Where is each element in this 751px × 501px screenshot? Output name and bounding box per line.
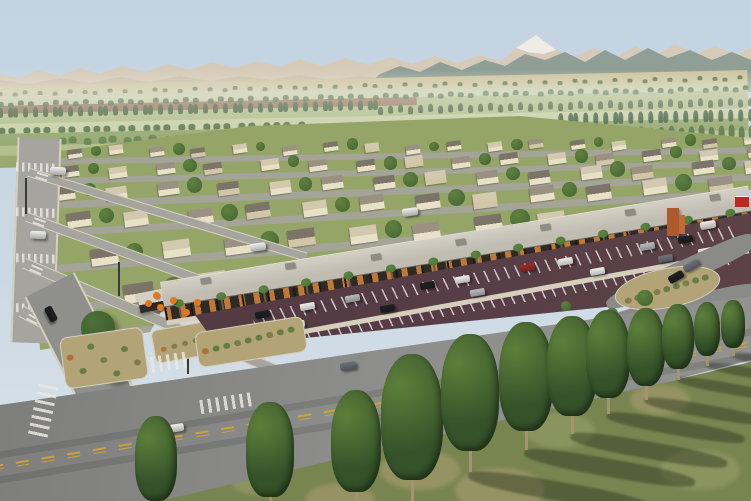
poplar-tree xyxy=(694,302,721,356)
poplar-tree xyxy=(135,416,177,501)
tree-shadow xyxy=(676,374,751,402)
poplar-tree xyxy=(246,402,293,497)
poplar-tree xyxy=(586,310,630,398)
poplar-tree xyxy=(499,322,553,431)
foreground-tree-row xyxy=(0,0,751,501)
poplar-tree xyxy=(441,334,499,451)
poplar-tree xyxy=(381,354,443,480)
poplar-tree xyxy=(331,390,381,492)
poplar-tree xyxy=(662,304,694,369)
scene xyxy=(0,0,751,501)
poplar-tree xyxy=(721,300,745,348)
poplar-tree xyxy=(627,308,666,386)
